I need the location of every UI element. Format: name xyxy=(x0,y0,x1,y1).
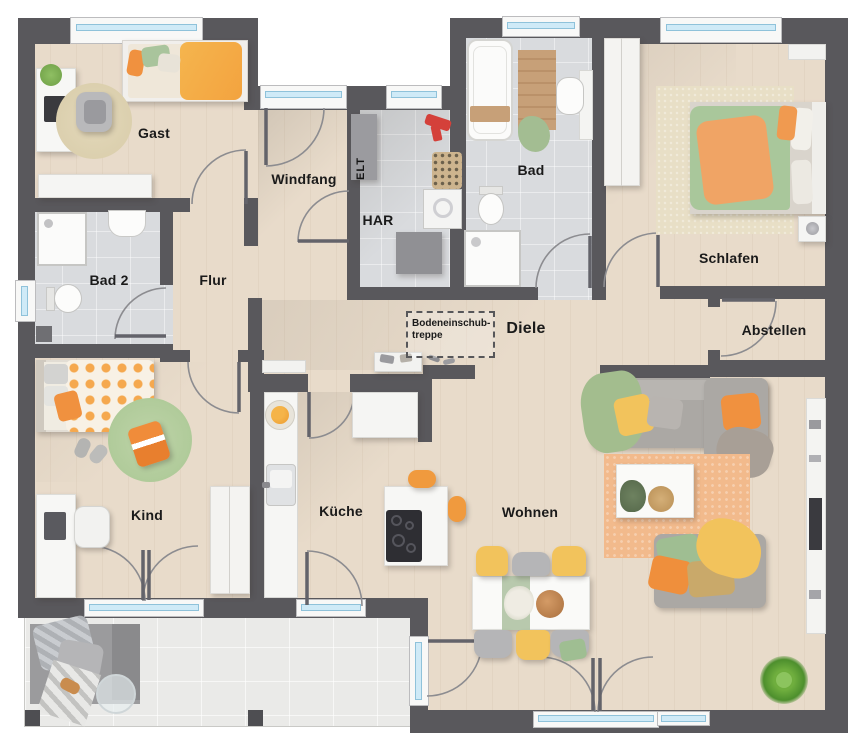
kind-desk-monitor xyxy=(44,512,66,540)
kueche-burner-1 xyxy=(391,515,402,526)
wall-bad2-right xyxy=(160,212,173,285)
har-window-glass xyxy=(391,91,437,98)
room-label-wohnen: Wohnen xyxy=(502,504,558,520)
schlafen-nightstand-lamp xyxy=(806,222,819,235)
wall-abstellen-left-top-stub xyxy=(708,295,720,307)
kueche-burner-2 xyxy=(405,521,414,530)
kueche-stool-1 xyxy=(408,470,436,488)
room-label-flur: Flur xyxy=(199,272,226,288)
gast-window-glass xyxy=(76,24,197,31)
sofa-pillow-gray xyxy=(646,396,684,430)
kind-wardrobe-split xyxy=(229,486,230,594)
bad-shower-drain xyxy=(471,237,481,247)
floor-plan: Gast Windfang ELT HAR Bad Schlafen Bad 2… xyxy=(0,0,864,750)
tv-books-2 xyxy=(809,455,821,462)
schlafen-headboard xyxy=(812,102,826,214)
wall-gast-bottom xyxy=(18,198,190,212)
wohnen-terrace-door-glass xyxy=(415,642,422,700)
flur-hall-cabinet xyxy=(262,360,306,373)
wall-bad-door-jamb xyxy=(592,287,606,300)
coffee-table-tray xyxy=(648,486,674,512)
bad2-window-glass xyxy=(21,286,28,316)
attic-hatch-line2: treppe xyxy=(412,330,490,342)
room-label-bad: Bad xyxy=(517,162,544,178)
room-label-bad2: Bad 2 xyxy=(89,272,128,288)
room-label-kind: Kind xyxy=(131,507,163,523)
kind-desk xyxy=(36,494,76,598)
attic-hatch-line1: Bodeneinschub- xyxy=(412,318,490,330)
kind-wardrobe xyxy=(210,486,250,594)
schlafen-window-glass xyxy=(666,24,776,31)
wall-kind-top-left xyxy=(160,350,190,362)
gast-blanket xyxy=(180,42,242,100)
dining-chair-gray-2 xyxy=(474,630,512,658)
wohnen-fern-core xyxy=(776,672,792,688)
room-label-windfang: Windfang xyxy=(271,171,336,187)
bad2-heater xyxy=(36,326,52,342)
bad-sink xyxy=(556,77,584,115)
wall-abstellen-bottom xyxy=(708,360,826,377)
dining-tray xyxy=(536,590,564,618)
schlafen-pillow-orange xyxy=(776,105,797,141)
kind-chair xyxy=(74,506,110,548)
wall-abstellen-left-bottom-stub xyxy=(708,350,720,368)
wall-diele-bench xyxy=(423,365,475,379)
schlafen-dresser xyxy=(788,44,826,60)
wall-schlafen-bottom xyxy=(660,286,826,299)
entry-porch xyxy=(250,0,452,86)
kueche-burner-4 xyxy=(406,543,416,553)
gast-dresser xyxy=(38,174,152,198)
kueche-fruit xyxy=(271,406,289,424)
kind-terrace-door-glass xyxy=(89,604,199,611)
room-label-kueche: Küche xyxy=(319,503,363,519)
dining-chair-yellow-2 xyxy=(552,546,586,576)
bad2-sink xyxy=(108,210,146,237)
front-door-glass xyxy=(265,91,342,98)
kueche-burner-3 xyxy=(392,534,405,547)
dining-chair-gray-1 xyxy=(512,552,550,576)
terrace-post-right xyxy=(248,710,263,726)
room-label-elt: ELT xyxy=(355,128,367,180)
kind-pillow-gray xyxy=(44,364,68,384)
wall-kueche-right xyxy=(418,374,432,442)
room-label-gast: Gast xyxy=(138,125,170,141)
schlafen-wardrobe-split xyxy=(621,38,622,186)
har-storage-box xyxy=(396,232,442,274)
wall-kueche-top-left xyxy=(248,374,308,392)
wall-windfang-left-stub xyxy=(244,198,258,246)
bad-toilet-bowl xyxy=(478,193,504,225)
wohnen-window-glass xyxy=(661,715,706,722)
har-laundry-basket xyxy=(432,152,462,189)
room-label-schlafen: Schlafen xyxy=(699,250,759,266)
kueche-terrace-door-glass xyxy=(301,604,361,611)
tv-screen xyxy=(809,498,822,550)
bad-towel-green xyxy=(518,116,550,152)
terrace-glass-table xyxy=(96,674,136,714)
kueche-faucet xyxy=(262,482,270,488)
wall-right-outer xyxy=(825,18,848,733)
schlafen-wardrobe xyxy=(604,38,640,186)
kueche-stool-2 xyxy=(448,496,466,522)
har-washer-door xyxy=(433,198,453,218)
wohnen-french-door-glass xyxy=(538,715,654,722)
dining-chair-yellow-1 xyxy=(476,546,508,576)
room-label-har: HAR xyxy=(363,212,394,228)
gast-chair-cushion xyxy=(84,100,106,124)
bad-window-glass xyxy=(507,22,575,29)
tv-books-3 xyxy=(809,590,821,599)
bad2-shower-drain xyxy=(44,219,53,228)
room-label-abstellen: Abstellen xyxy=(742,322,807,338)
kueche-sink-basin xyxy=(270,470,292,488)
schlafen-pillow-2 xyxy=(791,160,813,205)
bad-tub-caddy xyxy=(470,106,510,122)
room-label-diele: Diele xyxy=(506,320,545,338)
gast-plant xyxy=(40,64,62,86)
kueche-tall-cabinet xyxy=(352,392,418,438)
tv-books-1 xyxy=(809,420,821,429)
coffee-table-plant xyxy=(620,480,646,512)
bad2-toilet-bowl xyxy=(54,284,82,313)
gast-pillow-white xyxy=(157,53,181,73)
attic-hatch-box: Bodeneinschub- treppe xyxy=(406,311,495,358)
dining-chair-yellow-3 xyxy=(516,630,550,660)
wall-bad2-bottom xyxy=(18,344,173,358)
terrace-post-left xyxy=(25,710,40,726)
wall-har-bad-bottom xyxy=(347,287,538,300)
schlafen-throw-orange xyxy=(695,114,775,206)
